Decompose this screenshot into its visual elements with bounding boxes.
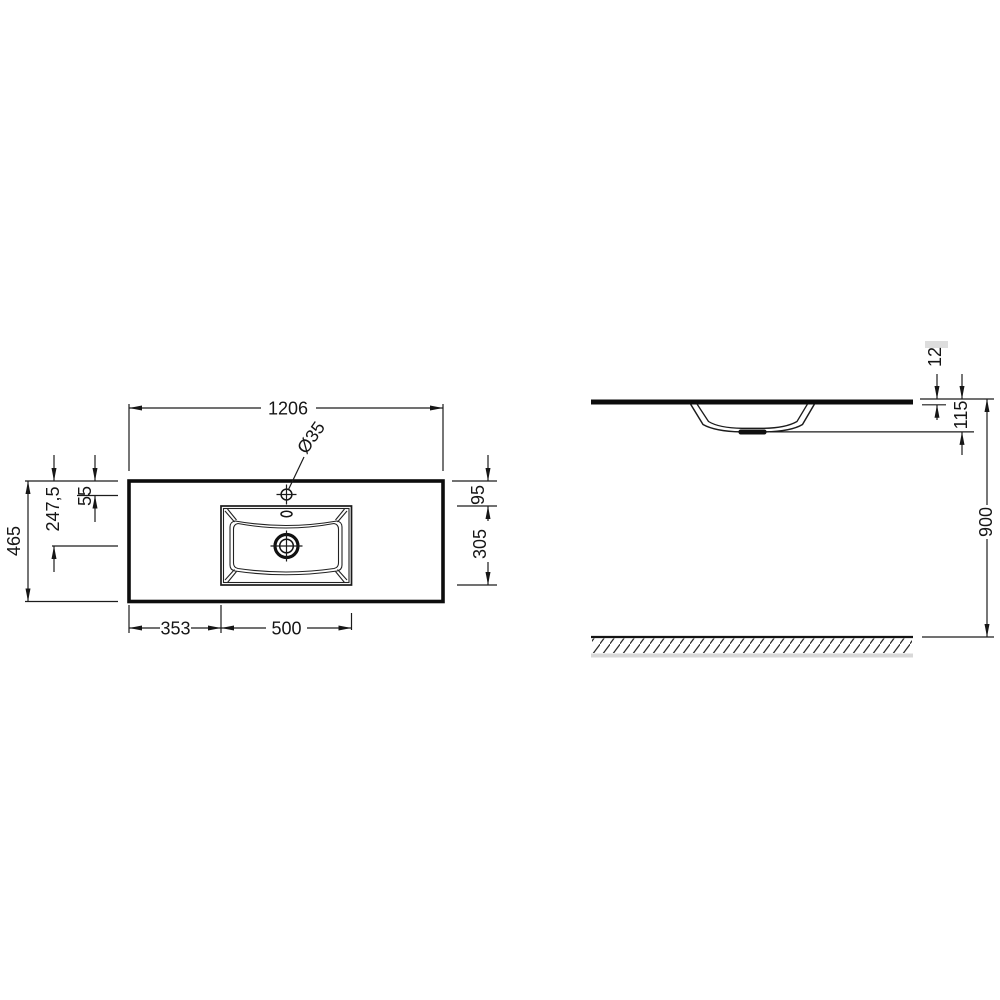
dims-left: 465 247,5 55 <box>4 455 118 602</box>
side-view: 12 115 900 <box>591 341 996 658</box>
dim-label-bowl-height: 115 <box>951 401 971 430</box>
floor-hatch <box>592 639 912 654</box>
dim-overall-width: 1206 <box>129 399 443 472</box>
floor <box>591 637 994 658</box>
dim-label-overall-depth: 465 <box>4 526 24 556</box>
artifact-highlight <box>925 341 948 348</box>
dim-label-installation-height: 900 <box>976 507 996 537</box>
countertop-slab <box>591 400 913 405</box>
dim-label-faucet-axis: 55 <box>75 486 95 506</box>
faucet-hole-callout: Ø35 <box>289 418 330 490</box>
dim-label-basin-depth: 305 <box>470 529 490 559</box>
dim-bowl-height: 115 <box>951 374 971 455</box>
technical-drawing: 1206 Ø35 465 247,5 55 <box>0 0 1000 1000</box>
drain-symbol <box>271 531 303 562</box>
dim-label-drain-axis: 247,5 <box>43 486 63 531</box>
overflow-hole <box>281 511 292 517</box>
faucet-hole-symbol <box>277 485 297 505</box>
dim-label-overall-width: 1206 <box>268 399 308 419</box>
drawing-canvas: 1206 Ø35 465 247,5 55 <box>0 0 1000 1000</box>
plan-view: 1206 Ø35 465 247,5 55 <box>4 399 497 639</box>
drain-fitting <box>739 430 767 435</box>
dim-label-basin-width: 500 <box>271 619 301 639</box>
dims-right: 95 305 <box>452 455 497 585</box>
dims-bottom: 353 500 <box>129 605 352 639</box>
dim-label-faucet-hole: Ø35 <box>293 418 329 457</box>
basin-profile <box>691 404 815 435</box>
dim-label-basin-front-offset: 95 <box>468 485 488 505</box>
dim-label-countertop-thickness: 12 <box>925 347 945 367</box>
dim-countertop-thickness: 12 <box>925 341 948 420</box>
dim-installation-height: 900 <box>976 399 996 637</box>
basin-outline <box>221 506 352 585</box>
floor-shadow <box>591 654 913 658</box>
dim-label-basin-left-offset: 353 <box>160 619 190 639</box>
